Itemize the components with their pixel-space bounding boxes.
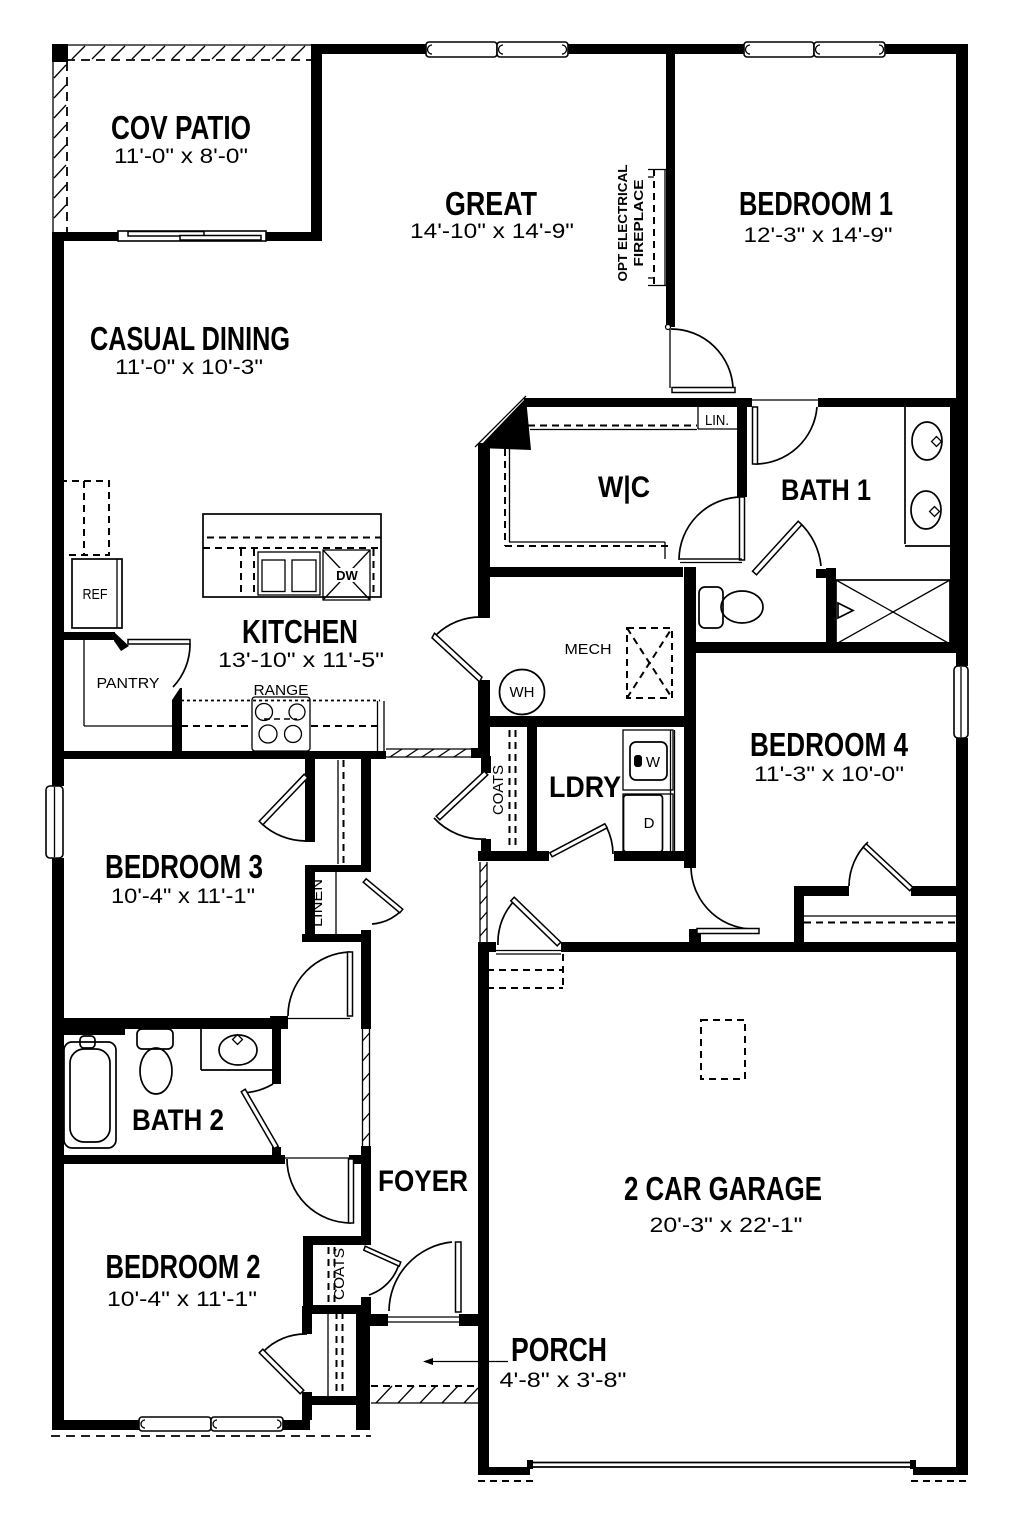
svg-text:KITCHEN: KITCHEN [242, 613, 358, 650]
svg-text:MECH: MECH [565, 641, 612, 658]
svg-text:12'-3" x 14'-9": 12'-3" x 14'-9" [744, 224, 893, 247]
svg-text:COATS: COATS [490, 765, 507, 815]
svg-text:14'-10" x 14'-9": 14'-10" x 14'-9" [410, 220, 574, 243]
svg-text:LIN.: LIN. [705, 412, 729, 429]
svg-text:20'-3" x 22'-1": 20'-3" x 22'-1" [650, 1214, 803, 1237]
svg-text:W: W [646, 754, 661, 771]
svg-text:OPT ELECTRICAL: OPT ELECTRICAL [615, 164, 630, 281]
svg-text:10'-4" x 11'-1": 10'-4" x 11'-1" [107, 1288, 257, 1311]
svg-text:11'-0" x 8'-0": 11'-0" x 8'-0" [114, 145, 248, 168]
svg-text:COATS: COATS [331, 1248, 348, 1300]
svg-text:W|C: W|C [598, 471, 650, 504]
svg-text:GREAT: GREAT [445, 185, 537, 222]
svg-text:11'-0" x 10'-3": 11'-0" x 10'-3" [115, 356, 263, 379]
svg-text:11'-3" x 10'-0": 11'-3" x 10'-0" [754, 763, 904, 786]
svg-text:COV PATIO: COV PATIO [111, 109, 251, 146]
svg-text:RANGE: RANGE [254, 682, 309, 699]
svg-text:PANTRY: PANTRY [97, 675, 160, 692]
svg-text:D: D [644, 815, 655, 832]
svg-text:BEDROOM 2: BEDROOM 2 [106, 1248, 261, 1285]
svg-text:BEDROOM 3: BEDROOM 3 [105, 848, 263, 885]
svg-text:BATH 2: BATH 2 [132, 1104, 224, 1137]
svg-text:2 CAR GARAGE: 2 CAR GARAGE [624, 1170, 822, 1207]
svg-text:10'-4" x 11'-1": 10'-4" x 11'-1" [111, 885, 255, 908]
svg-text:4'-8" x 3'-8": 4'-8" x 3'-8" [500, 1369, 627, 1392]
svg-text:DW: DW [336, 568, 358, 583]
svg-text:PORCH: PORCH [511, 1331, 607, 1368]
svg-text:FOYER: FOYER [378, 1165, 468, 1198]
svg-text:WH: WH [510, 684, 535, 701]
svg-text:BEDROOM 1: BEDROOM 1 [739, 185, 893, 222]
svg-text:CASUAL DINING: CASUAL DINING [90, 320, 290, 357]
svg-text:LINEN: LINEN [309, 879, 326, 927]
svg-text:BATH 1: BATH 1 [781, 474, 871, 507]
svg-text:BEDROOM 4: BEDROOM 4 [750, 726, 909, 763]
svg-text:REF: REF [83, 586, 108, 603]
svg-text:LDRY: LDRY [549, 771, 621, 804]
svg-text:13'-10" x 11'-5": 13'-10" x 11'-5" [218, 649, 384, 672]
svg-text:FIREPLACE: FIREPLACE [631, 179, 646, 266]
